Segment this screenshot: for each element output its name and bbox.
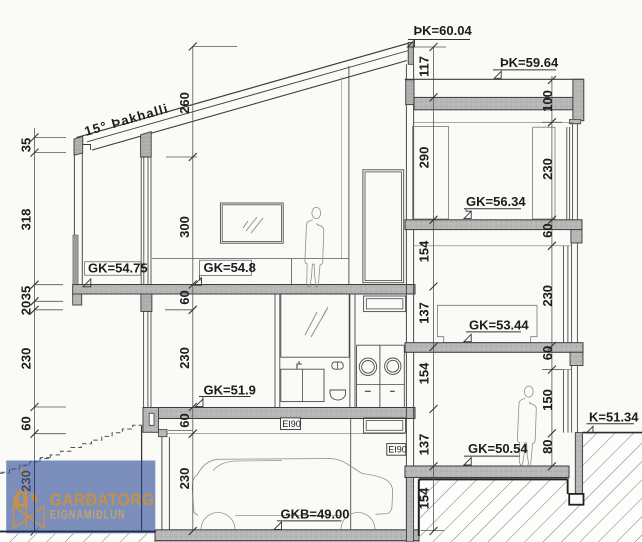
svg-text:EIGNAMIÐLUN: EIGNAMIÐLUN xyxy=(50,510,125,522)
svg-text:K=51.34: K=51.34 xyxy=(589,409,639,424)
svg-text:60: 60 xyxy=(19,416,34,430)
svg-text:137: 137 xyxy=(417,434,432,456)
svg-text:137: 137 xyxy=(417,302,432,324)
svg-text:290: 290 xyxy=(417,147,432,169)
svg-text:GK=54.75: GK=54.75 xyxy=(88,261,148,276)
svg-text:GARÐATORG: GARÐATORG xyxy=(50,489,155,509)
svg-text:EI90: EI90 xyxy=(388,445,407,455)
svg-text:60: 60 xyxy=(540,223,555,237)
svg-text:60: 60 xyxy=(540,346,555,360)
svg-text:GK=50.54: GK=50.54 xyxy=(468,441,528,456)
svg-text:230: 230 xyxy=(177,347,192,369)
svg-text:117: 117 xyxy=(417,56,432,77)
svg-text:GK=53.44: GK=53.44 xyxy=(469,318,529,333)
svg-text:35: 35 xyxy=(19,138,34,152)
svg-text:260: 260 xyxy=(177,92,192,114)
svg-text:230: 230 xyxy=(177,468,192,490)
svg-text:GK=56.34: GK=56.34 xyxy=(466,194,526,209)
svg-text:318: 318 xyxy=(19,209,34,231)
svg-text:GK=54.8: GK=54.8 xyxy=(204,260,256,275)
svg-text:150: 150 xyxy=(540,389,555,411)
svg-text:80: 80 xyxy=(540,439,555,453)
svg-text:100: 100 xyxy=(540,90,555,112)
svg-text:GK=51.9: GK=51.9 xyxy=(204,382,256,397)
svg-text:230: 230 xyxy=(540,285,555,307)
svg-text:EI90: EI90 xyxy=(282,419,301,429)
svg-text:ÞK=59.64: ÞK=59.64 xyxy=(500,55,559,70)
svg-text:60: 60 xyxy=(177,290,192,304)
svg-text:GKB=49.00: GKB=49.00 xyxy=(281,507,350,522)
svg-text:230: 230 xyxy=(540,158,555,180)
svg-text:60: 60 xyxy=(177,413,192,427)
svg-text:230: 230 xyxy=(19,470,34,492)
svg-text:154: 154 xyxy=(417,240,432,262)
svg-text:35: 35 xyxy=(19,286,34,300)
svg-text:154: 154 xyxy=(417,362,432,384)
svg-text:300: 300 xyxy=(177,216,192,238)
svg-text:ÞK=60.04: ÞK=60.04 xyxy=(414,23,473,38)
svg-text:154: 154 xyxy=(417,487,432,509)
svg-text:20: 20 xyxy=(19,301,34,315)
svg-text:230: 230 xyxy=(19,348,34,370)
